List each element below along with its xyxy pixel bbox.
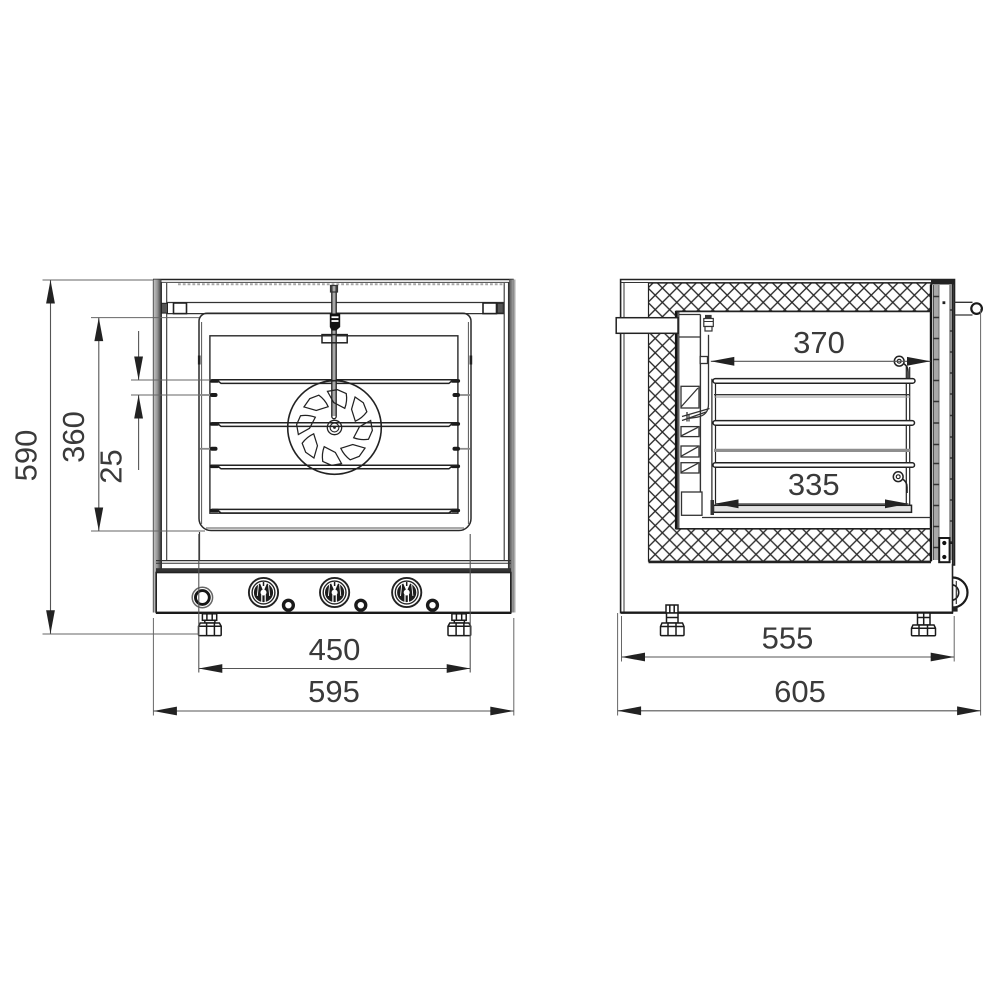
svg-text:595: 595	[308, 674, 360, 709]
svg-text:360: 360	[56, 411, 91, 463]
svg-text:605: 605	[774, 674, 826, 709]
svg-text:555: 555	[762, 621, 814, 656]
svg-text:25: 25	[94, 449, 129, 483]
svg-text:370: 370	[793, 325, 845, 360]
svg-text:335: 335	[788, 467, 840, 502]
svg-text:590: 590	[9, 430, 44, 482]
svg-text:450: 450	[309, 632, 361, 667]
